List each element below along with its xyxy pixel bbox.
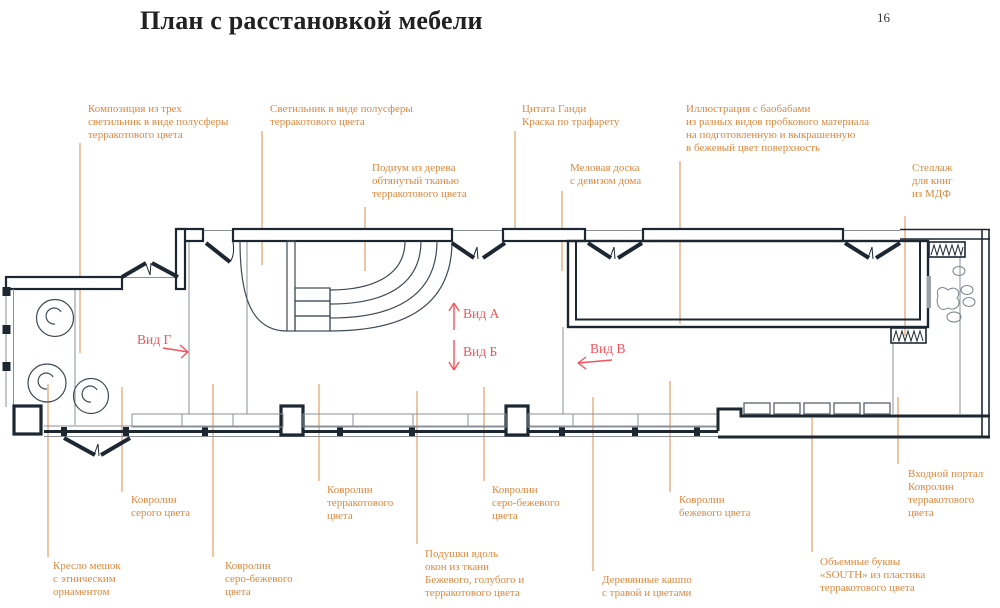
annotation-carpet-gray: Ковролин серого цвета (131, 494, 190, 520)
annotation-podium: Подиум из дерева обтянутый тканью террак… (372, 162, 467, 201)
annotation-window-pillows: Подушки вдоль окон из ткани Бежевого, го… (425, 548, 524, 600)
annotation-carpet-gray-beige-2: Ковролин серо-бежевого цвета (492, 484, 560, 523)
annotation-wooden-planters: Деревянные кашпо с травой и цветами (602, 574, 692, 600)
annotation-chalk-board: Меловая доска с девизом дома (570, 162, 641, 188)
annotation-south-letters: Объемные буквы «SOUTH» из пластика терра… (820, 556, 925, 595)
beanbag-chairs (28, 300, 109, 414)
bottom-window-wall (44, 406, 718, 437)
annotation-carpet-gray-beige-1: Ковролин серо-бежевого цвета (225, 560, 293, 599)
entry-portal-wall (718, 403, 990, 437)
podium (240, 241, 452, 331)
annotation-book-shelf: Стеллаж для книг из МДФ (912, 162, 953, 201)
annotation-illustration: Иллюстрация с баобабами из разных видов … (686, 103, 869, 155)
view-label-v: Вид В (590, 341, 625, 357)
annotation-carpet-beige: Ковролин бежевого цвета (679, 494, 751, 520)
annotation-entry-portal: Входной портал Ковролин терракотового цв… (908, 468, 983, 520)
view-v-arrow-left-icon (578, 357, 612, 369)
view-label-b: Вид Б (463, 344, 497, 360)
annotation-carpet-terracotta: Ковролин терракотового цвета (327, 484, 393, 523)
annotation-lamp-hemisphere: Светильник в виде полусферы терракотовог… (270, 103, 413, 129)
annotation-gandhi-quote: Цитата Ганди Краска по трафарету (522, 103, 619, 129)
decorative-stones (937, 267, 975, 323)
view-a-arrow-up-icon (449, 303, 459, 330)
view-b-arrow-down-icon (449, 340, 459, 370)
annotation-beanbag-chair: Кресло мешок с этническим орнаментом (53, 560, 121, 599)
annotation-lamps-composition: Композиция из трех светильник в виде пол… (88, 103, 228, 142)
left-window-wall (3, 287, 42, 434)
view-label-g: Вид Г (137, 332, 171, 348)
plan-page: План с расстановкой мебели 16 (0, 0, 1000, 608)
view-label-a: Вид А (463, 306, 499, 322)
